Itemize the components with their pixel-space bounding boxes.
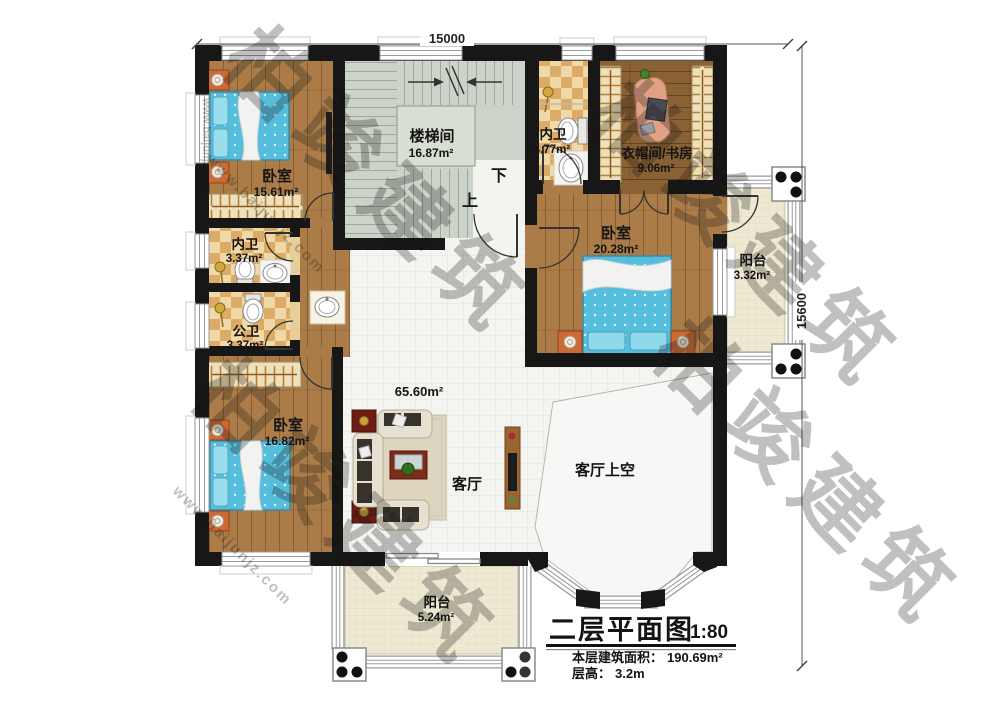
floor-plan-page: 卧室 15.61m² 楼梯间 16.87m² 内卫 4.77m² 衣帽间/书房 … (0, 0, 1000, 706)
area-bedroom-right: 20.28m² (594, 242, 639, 256)
floor-height-label: 层高： (572, 666, 611, 681)
label-bath-public: 公卫 (233, 324, 260, 339)
area-bath-ensuite-top: 4.77m² (534, 144, 571, 156)
sink (554, 151, 588, 185)
plan-title: 二层平面图 (549, 615, 694, 645)
toilet (243, 294, 263, 323)
area-bath-ensuite-left: 3.37m² (226, 253, 263, 265)
label-bedroom-top-left: 卧室 (262, 167, 292, 185)
floor-plan-canvas: 卧室 15.61m² 楼梯间 16.87m² 内卫 4.77m² 衣帽间/书房 … (0, 0, 1000, 706)
column-marker (333, 648, 366, 681)
watermark-url: www.baijunjz.com (200, 97, 212, 193)
label-stairwell: 楼梯间 (409, 127, 454, 145)
column-marker (772, 167, 805, 201)
area-living-room: 65.60m² (395, 384, 444, 399)
title-block: 二层平面图 1:80 本层建筑面积：190.69m² 层高：3.2m (546, 615, 736, 681)
tv-cabinet (505, 427, 520, 509)
floor-area-line: 本层建筑面积：190.69m² (572, 650, 723, 665)
dimension-top: 15000 (429, 31, 465, 46)
label-bath-ensuite-left: 内卫 (232, 236, 259, 252)
plan-scale: 1:80 (690, 622, 728, 643)
window (186, 232, 209, 270)
bed (583, 256, 671, 355)
label-bath-ensuite-top: 内卫 (540, 126, 568, 142)
stair-down-label: 下 (491, 168, 507, 185)
floor-area-value: 190.69m² (667, 650, 723, 665)
label-living-void: 客厅上空 (574, 461, 635, 479)
floor-height-value: 3.2m (615, 666, 645, 681)
column-marker (502, 648, 535, 681)
floor-height-line: 层高：3.2m (572, 666, 645, 681)
sink (260, 260, 291, 286)
window (614, 37, 706, 60)
title-underline (546, 644, 736, 647)
window (186, 302, 209, 350)
floor-area-label: 本层建筑面积： (572, 650, 663, 665)
label-bedroom-right: 卧室 (601, 224, 631, 242)
plant (402, 463, 414, 475)
sink (310, 291, 345, 324)
label-living-room: 客厅 (451, 475, 482, 493)
window (560, 38, 594, 60)
coffee-table (390, 451, 427, 479)
